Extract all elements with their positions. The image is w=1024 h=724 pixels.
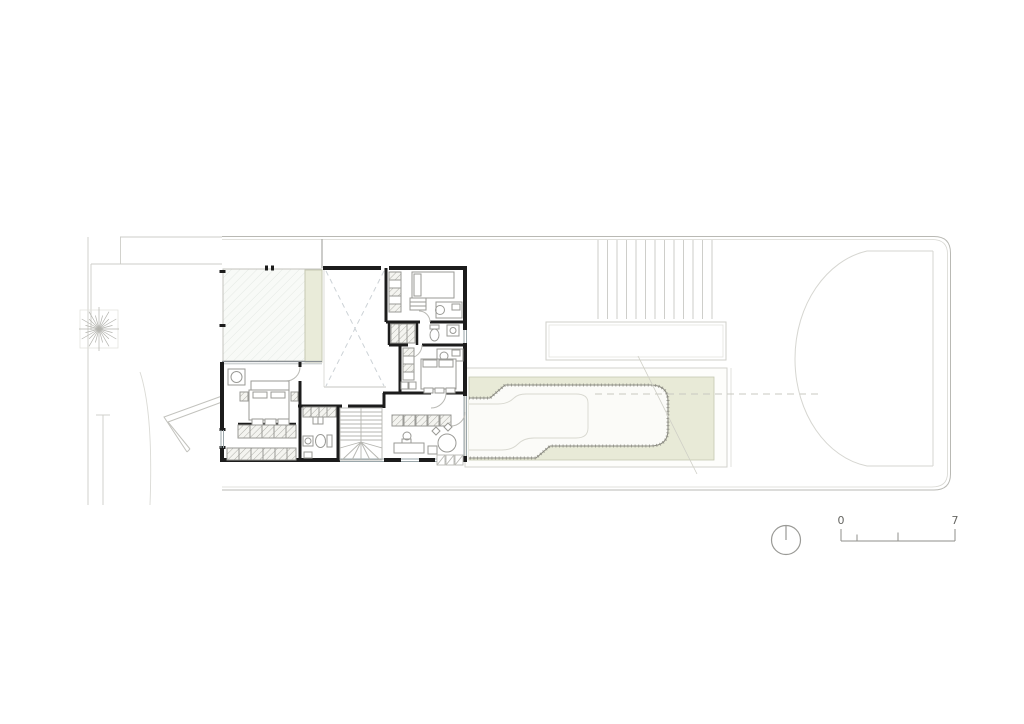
glazing-tick [271, 266, 274, 271]
pillow [439, 360, 453, 367]
bathroom-1 [391, 324, 459, 343]
desk [394, 443, 424, 453]
sink [447, 325, 459, 336]
rear-lawn-curve [795, 251, 933, 466]
cabinet [392, 415, 403, 426]
street-lines [88, 237, 222, 505]
headboard [251, 381, 289, 390]
north-indicator [772, 526, 801, 555]
bedroom-1 [389, 272, 462, 318]
floor-plan-drawing: 0 7 [0, 0, 1024, 724]
scale-bar: 0 7 [838, 514, 959, 541]
planter-strip [305, 270, 322, 362]
toilet [430, 329, 439, 341]
garden-terrace [465, 356, 822, 474]
glazing-tick [220, 270, 226, 273]
round-table [438, 434, 456, 452]
toilet-tank [327, 435, 332, 447]
tree-symbol [79, 307, 119, 351]
toilet [316, 435, 326, 448]
closet [391, 324, 415, 343]
nightstand [240, 392, 248, 401]
scale-start-label: 0 [838, 514, 845, 527]
pouf [432, 427, 440, 435]
dresser [410, 298, 426, 310]
planter-bench [546, 322, 726, 360]
bedroom-2 [401, 348, 463, 393]
bathroom-2 [303, 407, 336, 458]
staircase [340, 408, 382, 460]
wardrobe [403, 348, 414, 356]
entry-steps [437, 455, 463, 465]
closet-band [227, 448, 296, 460]
louver-deck [598, 240, 712, 319]
pillow [271, 392, 285, 398]
pillow [414, 274, 421, 296]
wardrobe [389, 272, 401, 280]
pillow [253, 392, 267, 398]
nightstand [291, 392, 298, 401]
driveway-path [164, 396, 222, 452]
door-arc [431, 393, 446, 408]
master-bedroom [227, 369, 298, 460]
kitchen-dining [392, 415, 456, 454]
wardrobe-band [238, 425, 296, 438]
glazing-tick [265, 266, 268, 271]
door-arc [451, 412, 465, 426]
pillow [423, 360, 437, 367]
door-arc [419, 311, 430, 322]
toilet-tank [430, 325, 439, 329]
floor-plan-sheet: 0 7 [0, 0, 1024, 724]
void-double-height [324, 268, 386, 387]
glazing-tick [220, 324, 226, 327]
door-arc [286, 367, 300, 381]
scale-end-label: 7 [952, 514, 959, 527]
